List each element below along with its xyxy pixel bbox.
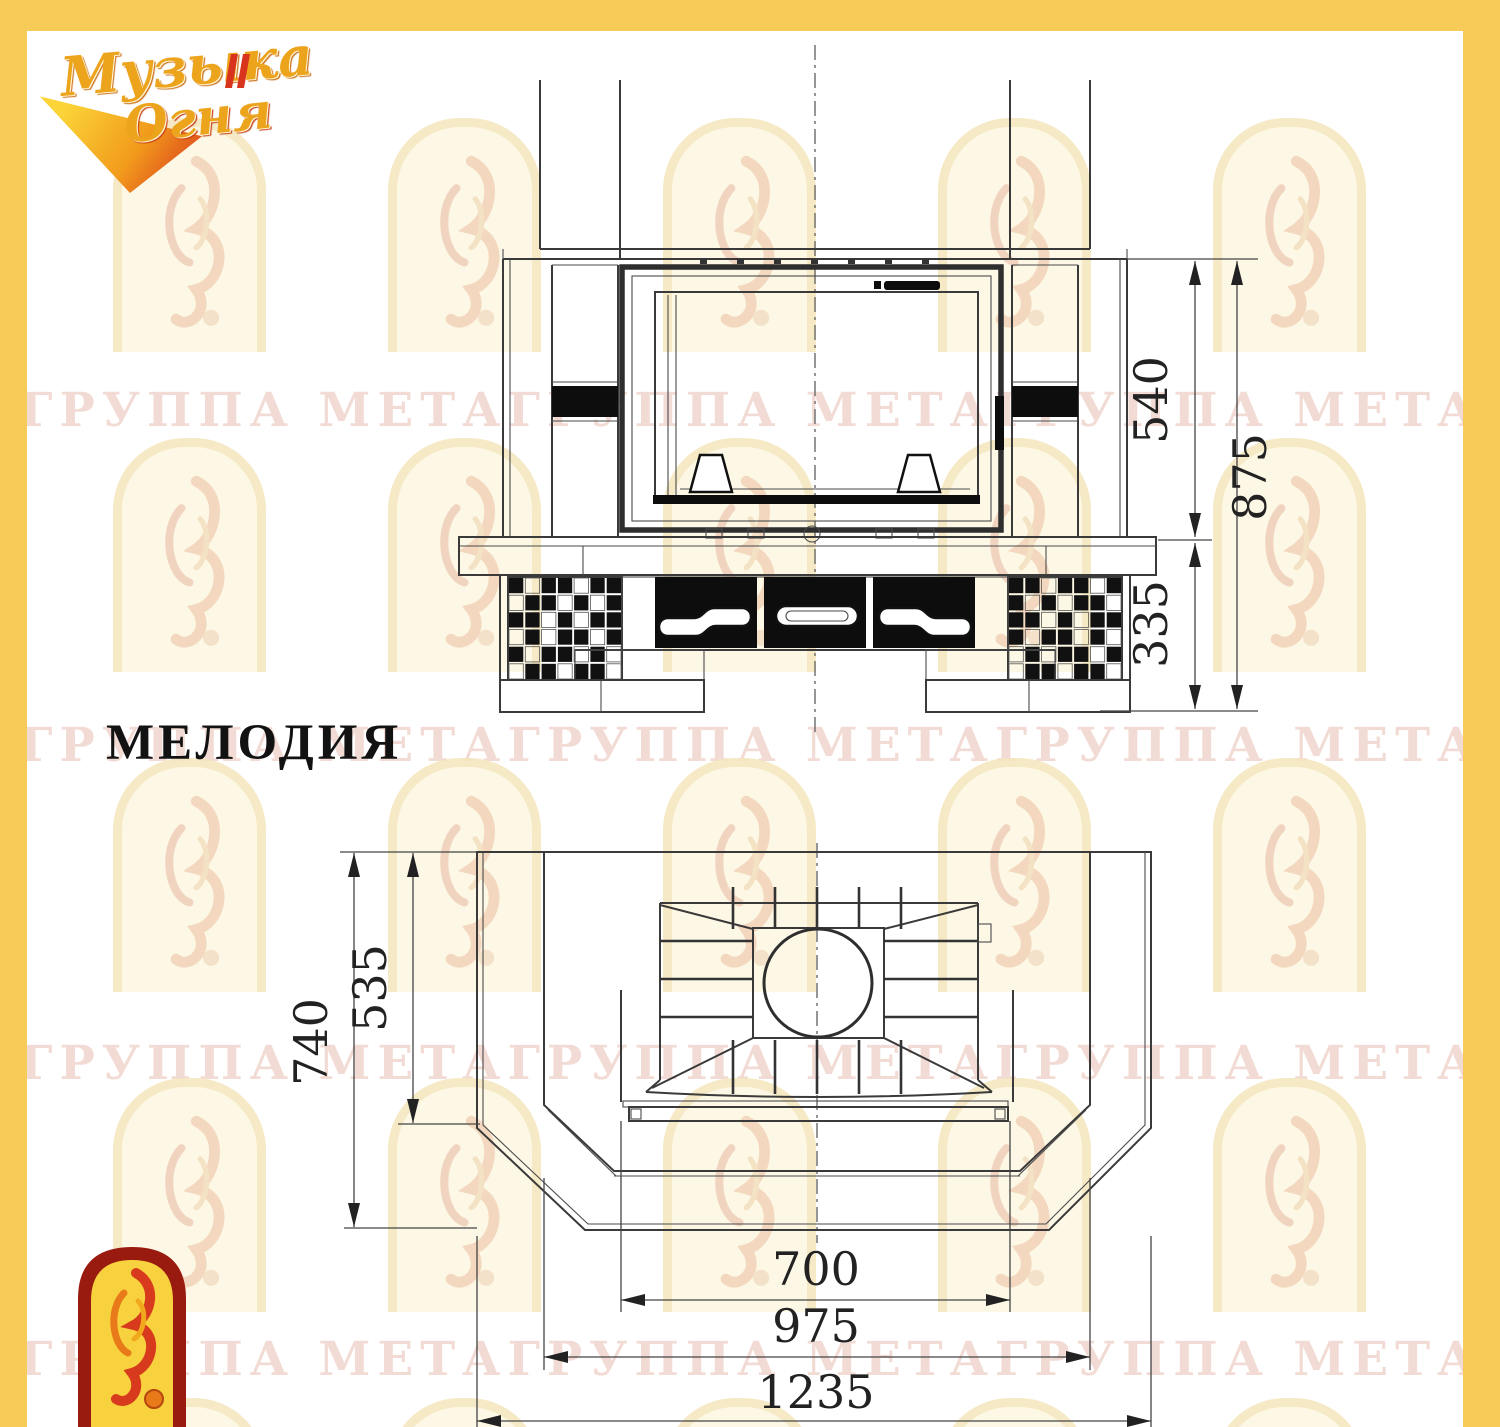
brick-cell — [509, 630, 523, 645]
brick-cell — [1074, 612, 1088, 627]
brick-cell — [525, 595, 539, 610]
brick-pillar-left — [509, 578, 621, 679]
brick-cell — [607, 578, 621, 593]
flue-outlet-circle — [764, 929, 872, 1037]
brick-cell — [574, 595, 588, 610]
brick-cell — [558, 612, 572, 627]
brick-cell — [1090, 647, 1104, 662]
brick-cell — [1042, 578, 1056, 593]
plan-firebox — [623, 887, 1008, 1121]
brick-cell — [1058, 612, 1072, 627]
dim-875: 875 — [1223, 433, 1277, 521]
brick-cell — [590, 612, 604, 627]
brick-cell — [1107, 630, 1121, 645]
brick-cell — [1058, 664, 1072, 679]
page-border-right — [1463, 0, 1500, 1427]
andiron-right — [898, 455, 940, 492]
muzyka-ognya-logo: Музыка Огня — [32, 26, 282, 186]
brick-cell — [1107, 664, 1121, 679]
rib-lines — [660, 941, 978, 1017]
brick-cell — [1058, 595, 1072, 610]
plinth-left — [500, 680, 704, 712]
brick-cell — [590, 595, 604, 610]
brick-cell — [590, 664, 604, 679]
brick-cell — [558, 647, 572, 662]
brick-cell — [1107, 647, 1121, 662]
brick-cell — [525, 647, 539, 662]
brick-cell — [1074, 578, 1088, 593]
plinth-right — [926, 680, 1130, 712]
brick-cell — [558, 578, 572, 593]
pill-ornament — [776, 606, 858, 626]
brick-cell — [1074, 664, 1088, 679]
dim-540: 540 — [1124, 356, 1178, 444]
brick-cell — [1090, 664, 1104, 679]
door-handle — [995, 396, 1004, 450]
brick-cell — [1042, 664, 1056, 679]
brick-cell — [1025, 595, 1039, 610]
brick-cell — [574, 664, 588, 679]
front-view: 540 335 875 — [459, 45, 1277, 737]
brick-cell — [1074, 630, 1088, 645]
brick-cell — [607, 664, 621, 679]
brick-cell — [1025, 664, 1039, 679]
brick-cell — [509, 647, 523, 662]
catalog-page: ГРУППА МЕТАГРУППА МЕТАГРУППА МЕТА ГРУППА… — [0, 0, 1500, 1427]
brick-cell — [1009, 595, 1023, 610]
brick-cell — [1107, 595, 1121, 610]
brand-mark-icon — [874, 281, 881, 289]
brick-cell — [1042, 612, 1056, 627]
dim-335: 335 — [1124, 580, 1178, 668]
andiron-left — [690, 455, 732, 492]
page-border-left — [0, 0, 27, 1427]
firebird-arch-icon — [78, 1241, 186, 1427]
brick-cell — [1090, 630, 1104, 645]
brick-cell — [1058, 647, 1072, 662]
dim-975: 975 — [772, 1299, 860, 1353]
brick-cell — [574, 647, 588, 662]
brick-cell — [1009, 664, 1023, 679]
brick-cell — [558, 664, 572, 679]
mantel-shelf — [459, 537, 1156, 575]
brick-cell — [1025, 630, 1039, 645]
brick-cell — [1025, 612, 1039, 627]
plan-outline — [477, 852, 1151, 1230]
dim-700: 700 — [772, 1242, 860, 1296]
dim-1235: 1235 — [757, 1365, 874, 1419]
brick-cell — [574, 630, 588, 645]
brick-cell — [607, 595, 621, 610]
brick-cell — [509, 595, 523, 610]
brick-cell — [558, 595, 572, 610]
brick-cell — [509, 664, 523, 679]
plan-dimensions: 740 535 700 975 — [284, 852, 1151, 1427]
brick-cell — [1058, 630, 1072, 645]
brick-cell — [1042, 647, 1056, 662]
brick-cell — [1074, 647, 1088, 662]
brick-cell — [590, 630, 604, 645]
brick-cell — [525, 664, 539, 679]
brick-cell — [525, 612, 539, 627]
brick-cell — [542, 630, 556, 645]
brick-cell — [1009, 630, 1023, 645]
brick-cell — [542, 612, 556, 627]
brick-cell — [1009, 647, 1023, 662]
brick-cell — [574, 578, 588, 593]
brand-mark-icon — [884, 281, 940, 290]
brick-cell — [1025, 647, 1039, 662]
brick-cell — [1090, 578, 1104, 593]
brick-cell — [509, 578, 523, 593]
brick-cell — [1009, 612, 1023, 627]
brick-cell — [1058, 578, 1072, 593]
brick-cell — [525, 630, 539, 645]
brick-pillar-right — [1009, 578, 1121, 679]
brick-cell — [542, 647, 556, 662]
brick-cell — [1107, 578, 1121, 593]
brick-cell — [607, 612, 621, 627]
brick-cell — [1042, 630, 1056, 645]
brick-cell — [558, 630, 572, 645]
brick-cell — [525, 578, 539, 593]
brick-cell — [1090, 595, 1104, 610]
firebox-door — [622, 267, 1004, 530]
brick-cell — [542, 595, 556, 610]
dim-740: 740 — [284, 998, 338, 1086]
dim-535: 535 — [343, 944, 397, 1032]
brick-cell — [1025, 578, 1039, 593]
brick-cell — [590, 647, 604, 662]
firebird-corner-logo — [78, 1241, 186, 1427]
brick-cell — [590, 578, 604, 593]
brick-cell — [1090, 612, 1104, 627]
model-title: МЕЛОДИЯ — [106, 714, 402, 772]
brick-cell — [607, 630, 621, 645]
brick-cell — [542, 578, 556, 593]
brick-cell — [1009, 578, 1023, 593]
brick-cell — [1107, 612, 1121, 627]
brick-cell — [542, 664, 556, 679]
door-sill — [653, 495, 980, 504]
brick-cell — [574, 612, 588, 627]
brick-cell — [1042, 595, 1056, 610]
brick-cell — [607, 647, 621, 662]
brick-cell — [1074, 595, 1088, 610]
plan-view: 740 535 700 975 — [284, 843, 1151, 1427]
brick-cell — [509, 612, 523, 627]
